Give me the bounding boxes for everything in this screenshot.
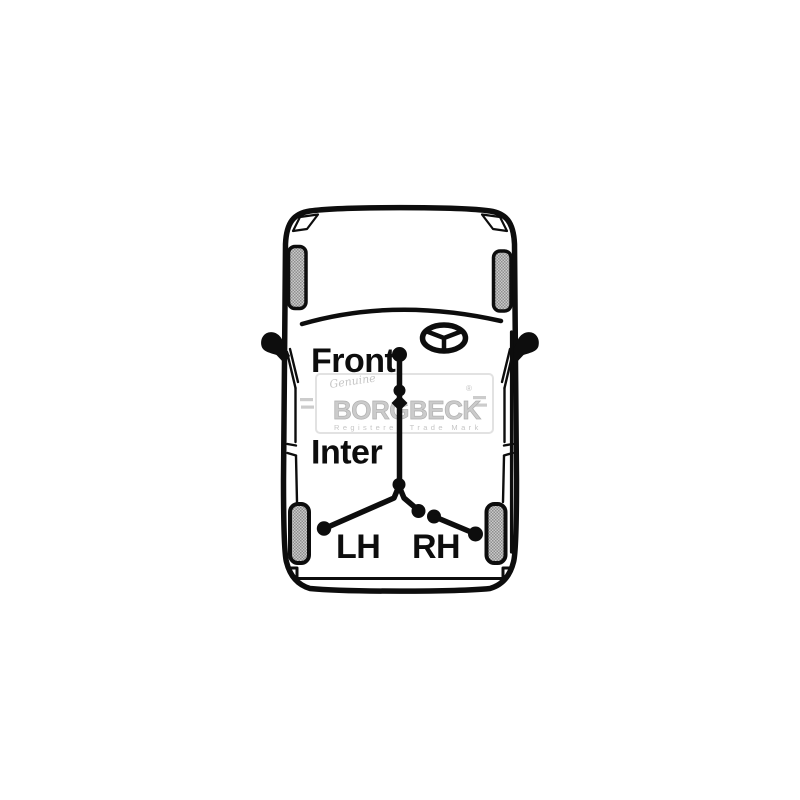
watermark-registered-icon: ® [466,384,472,393]
cable-lh-end [317,521,331,535]
front-right-wheel [494,251,512,311]
product-image: Genuine BORG BECK ® Registered Trade Mar… [0,0,800,800]
cable-rh-end [468,527,483,542]
front-left-wheel [289,247,307,309]
cable-rh-coupler-a [412,504,426,518]
vehicle-top-view-diagram: Genuine BORG BECK ® Registered Trade Mar… [0,0,800,800]
label-rh: RH [412,528,460,566]
steering-wheel-icon [423,325,466,351]
watermark-beck: BECK [409,395,481,425]
label-inter: Inter [311,434,382,472]
rear-right-wheel [487,504,506,563]
cable-connector-round [394,385,406,397]
label-lh: LH [336,528,380,566]
watermark-tagline: Registered Trade Mark [334,423,482,432]
label-front: Front [311,342,396,380]
rear-left-wheel [290,504,309,563]
